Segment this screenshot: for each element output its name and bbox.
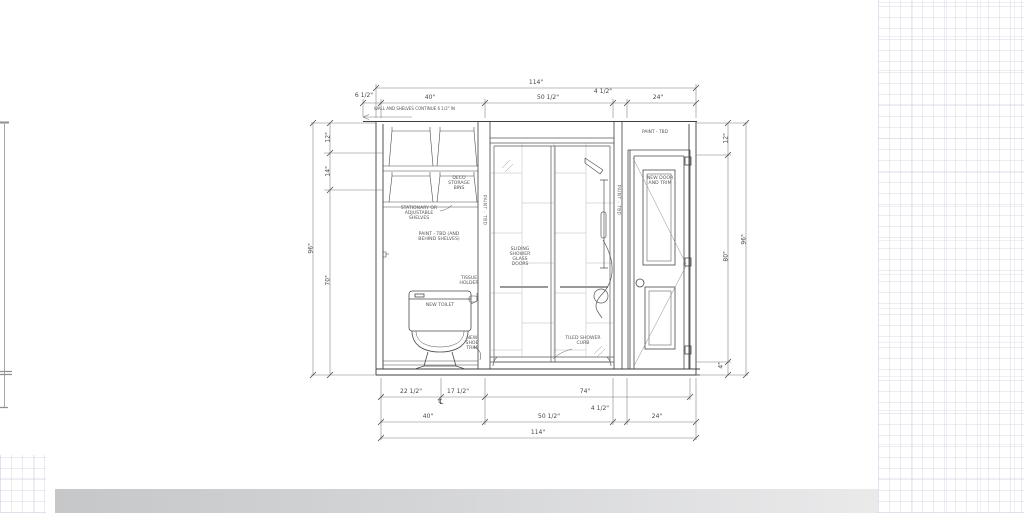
left-edge-artifacts	[0, 122, 12, 408]
dim-bottom-row2: 40"	[414, 414, 442, 421]
dim-bottom-row2: 50 1/2"	[535, 414, 563, 421]
dim-left-seg: 70"	[326, 268, 333, 292]
dim-bottom-row1: 22 1/2"	[397, 389, 425, 396]
new-toilet-label: NEW TOILET	[420, 303, 460, 308]
centerline-symbol: ℄	[434, 399, 448, 407]
dim-bottom-row1: 74"	[571, 389, 599, 396]
dim-right-seg: 12"	[724, 126, 731, 150]
paint-strip-label-right: PAINT - TBD	[616, 175, 621, 225]
paint-strip-label-left: PAINT - TBD	[482, 185, 487, 235]
deco-storage-bins-label: DECO STORAGE BINS	[445, 176, 473, 191]
dim-bottom-row2: 4 1/2"	[586, 406, 614, 413]
dim-bottom-overall: 114"	[524, 430, 552, 437]
dim-right-seg: 80"	[724, 244, 731, 268]
dim-right-seg: 4"	[719, 353, 726, 377]
shelving-and-bins	[383, 127, 478, 365]
paint-tbd-label: PAINT - TBD	[636, 131, 674, 136]
dim-top-overall: 114"	[520, 80, 552, 87]
adjustable-shelves-label: STATIONARY OR ADJUSTABLE SHELVES	[395, 206, 443, 221]
new-door-trim-label: NEW DOOR AND TRIM	[646, 176, 674, 186]
dim-right-overall: 96"	[742, 227, 749, 251]
tiled-shower-curb-label: TILED SHOWER CURB	[564, 336, 602, 346]
sliding-shower-doors-label: SLIDING SHOWER GLASS DOORS	[506, 247, 534, 268]
new-shoe-trim-label: NEW SHOE TRIM	[460, 336, 484, 351]
dim-left-seg: 12"	[326, 125, 333, 149]
dim-bottom-row2: 24"	[643, 414, 671, 421]
dim-left-overall: 96"	[309, 236, 316, 260]
tissue-holder-label: TISSUE HOLDER	[456, 276, 482, 286]
dim-top-seg: 6 1/2"	[351, 93, 377, 100]
dim-left-seg: 14"	[326, 159, 333, 183]
cad-canvas: 114" 6 1/2" 40" 50 1/2" 4 1/2" 24" 22 1/…	[0, 0, 1024, 513]
dim-bottom-row1: 17 1/2"	[444, 389, 472, 396]
paint-tbd-behind-shelves-label: PAINT - TBD (AND BEHIND SHELVES)	[418, 232, 460, 242]
dim-top-seg: 50 1/2"	[534, 95, 562, 102]
dim-top-seg: 4 1/2"	[589, 89, 617, 96]
wall-shelves-note: WALL AND SHELVES CONTINUE 6 1/2" IN	[374, 107, 458, 111]
shower-fixture	[585, 158, 612, 318]
dim-top-seg: 40"	[418, 95, 442, 102]
dim-top-seg: 24"	[646, 95, 670, 102]
